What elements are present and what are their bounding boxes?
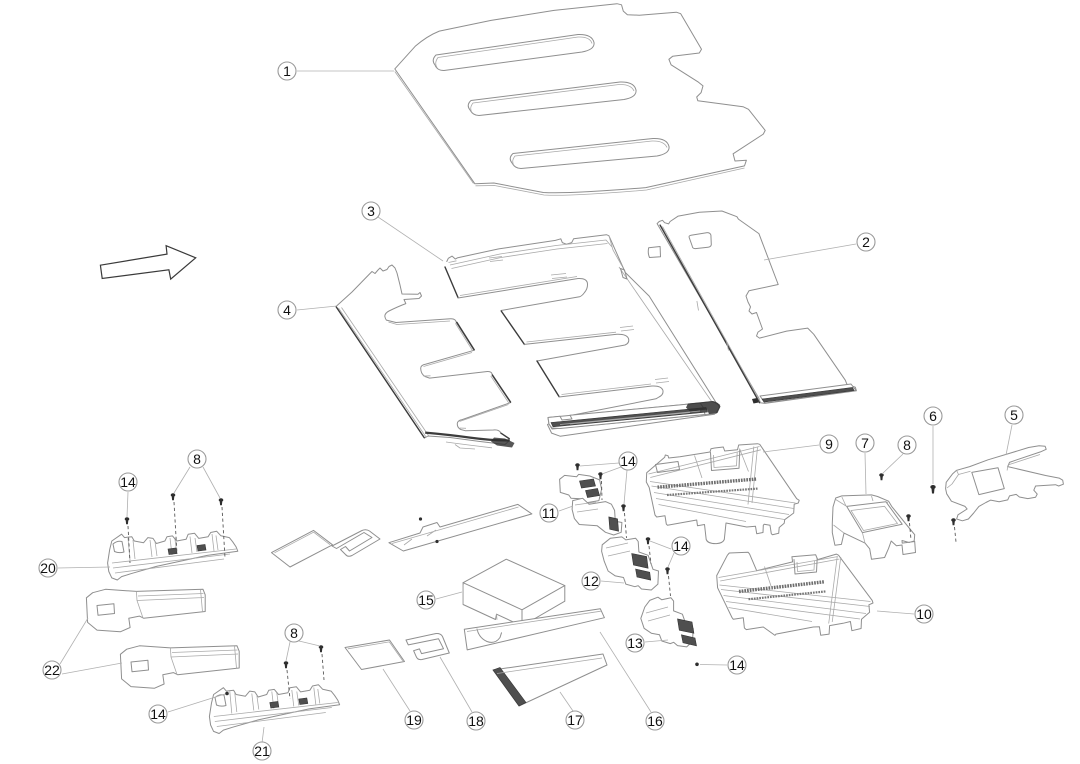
svg-text:14: 14 (150, 706, 166, 722)
svg-text:22: 22 (44, 662, 60, 678)
svg-text:6: 6 (929, 408, 937, 424)
svg-text:18: 18 (468, 713, 484, 729)
svg-text:12: 12 (583, 573, 599, 589)
svg-text:1: 1 (283, 63, 291, 79)
svg-text:8: 8 (903, 437, 911, 453)
svg-text:8: 8 (290, 625, 298, 641)
svg-text:17: 17 (567, 712, 583, 728)
svg-text:11: 11 (542, 505, 557, 521)
svg-text:20: 20 (40, 560, 56, 576)
svg-text:21: 21 (254, 743, 270, 759)
svg-text:19: 19 (406, 712, 422, 728)
svg-text:2: 2 (862, 234, 870, 250)
svg-text:15: 15 (418, 592, 434, 608)
svg-text:16: 16 (647, 713, 663, 729)
svg-text:14: 14 (620, 453, 636, 469)
svg-text:7: 7 (861, 435, 869, 451)
svg-text:8: 8 (193, 451, 201, 467)
svg-text:13: 13 (627, 635, 643, 651)
svg-text:10: 10 (916, 606, 932, 622)
svg-text:3: 3 (367, 203, 375, 219)
svg-text:14: 14 (729, 657, 745, 673)
svg-text:5: 5 (1010, 407, 1018, 423)
svg-text:9: 9 (825, 436, 833, 452)
svg-text:4: 4 (283, 302, 291, 318)
svg-text:14: 14 (120, 474, 136, 490)
svg-text:14: 14 (673, 538, 689, 554)
